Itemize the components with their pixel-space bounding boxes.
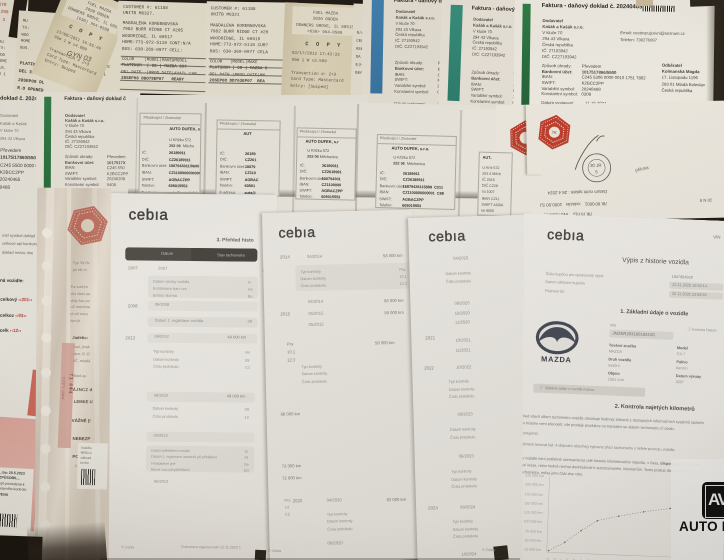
svg-text:MAZDA: MAZDA: [541, 354, 572, 364]
svg-text:TK: TK: [552, 130, 558, 136]
svg-text:5: 5: [595, 169, 598, 174]
svg-text:30 JR: 30 JR: [590, 163, 602, 168]
